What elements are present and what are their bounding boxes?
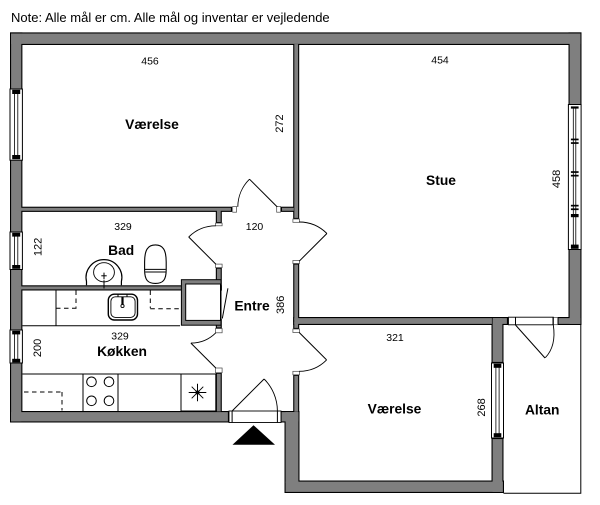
- svg-text:386: 386: [275, 296, 287, 314]
- svg-text:321: 321: [386, 332, 404, 344]
- svg-text:329: 329: [114, 221, 132, 233]
- svg-text:Bad: Bad: [108, 243, 134, 258]
- svg-text:Værelse: Værelse: [368, 402, 422, 417]
- svg-text:200: 200: [32, 339, 44, 357]
- svg-text:122: 122: [32, 238, 44, 256]
- svg-text:454: 454: [431, 55, 449, 67]
- svg-text:329: 329: [111, 331, 129, 343]
- svg-text:120: 120: [246, 221, 264, 233]
- svg-text:268: 268: [476, 398, 488, 416]
- svg-text:456: 456: [141, 56, 159, 68]
- svg-text:272: 272: [274, 114, 286, 132]
- svg-text:458: 458: [551, 170, 563, 188]
- svg-text:Køkken: Køkken: [97, 344, 147, 359]
- svg-text:Altan: Altan: [525, 402, 560, 417]
- svg-text:Værelse: Værelse: [125, 117, 179, 132]
- svg-text:Stue: Stue: [426, 173, 456, 188]
- svg-text:Entre: Entre: [234, 298, 270, 313]
